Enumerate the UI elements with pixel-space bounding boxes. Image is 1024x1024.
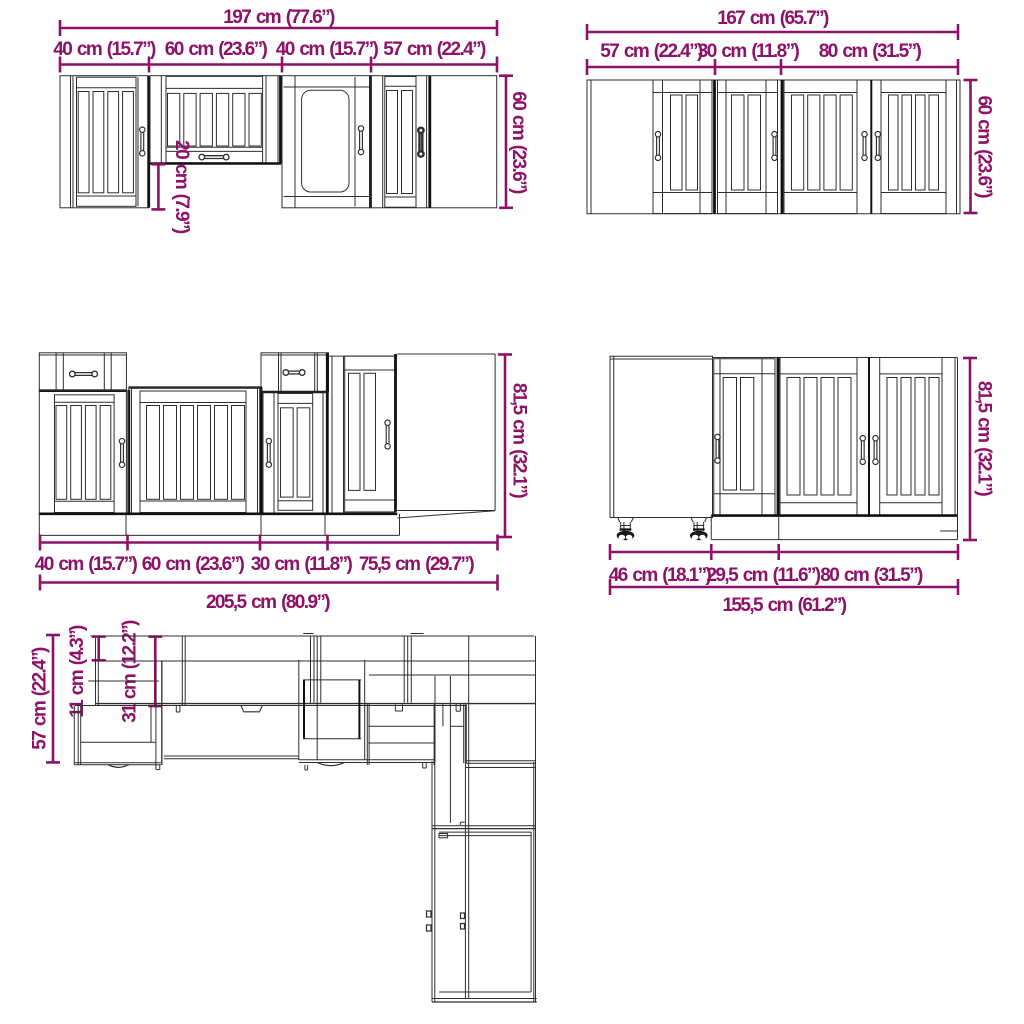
svg-text:57 cm (22.4”): 57 cm (22.4”) [600, 41, 703, 62]
svg-text:80 cm (31.5”): 80 cm (31.5”) [819, 41, 922, 62]
svg-text:57 cm (22.4”): 57 cm (22.4”) [30, 647, 51, 750]
svg-text:205,5 cm (80.9”): 205,5 cm (80.9”) [206, 592, 330, 613]
svg-text:30 cm (11.8”): 30 cm (11.8”) [698, 41, 800, 62]
svg-text:60 cm (23.6”): 60 cm (23.6”) [165, 39, 268, 60]
svg-text:80 cm (31.5”): 80 cm (31.5”) [820, 565, 923, 586]
svg-text:60 cm (23.6”): 60 cm (23.6”) [974, 96, 995, 199]
svg-text:167 cm (65.7”): 167 cm (65.7”) [717, 8, 829, 29]
svg-text:31 cm (12.2”): 31 cm (12.2”) [120, 620, 141, 723]
svg-text:60 cm (23.6”): 60 cm (23.6”) [508, 91, 529, 194]
svg-text:46 cm (18.1”): 46 cm (18.1”) [609, 565, 712, 586]
svg-text:29,5 cm (11.6”): 29,5 cm (11.6”) [706, 565, 820, 586]
svg-text:40 cm (15.7”): 40 cm (15.7”) [276, 39, 379, 60]
svg-text:81,5 cm (32.1”): 81,5 cm (32.1”) [509, 383, 530, 498]
svg-text:57 cm (22.4”): 57 cm (22.4”) [383, 39, 486, 60]
svg-text:155,5 cm (61.2”): 155,5 cm (61.2”) [722, 595, 846, 616]
svg-text:30 cm (11.8”): 30 cm (11.8”) [251, 554, 353, 575]
svg-text:197 cm (77.6”): 197 cm (77.6”) [223, 7, 335, 28]
svg-text:40 cm (15.7”): 40 cm (15.7”) [35, 554, 138, 575]
svg-text:75,5 cm (29.7”): 75,5 cm (29.7”) [359, 554, 474, 575]
svg-text:40 cm (15.7”): 40 cm (15.7”) [53, 39, 156, 60]
svg-text:11 cm (4.3”): 11 cm (4.3”) [67, 625, 88, 718]
svg-text:60 cm (23.6”): 60 cm (23.6”) [142, 554, 245, 575]
svg-text:81,5 cm (32.1”): 81,5 cm (32.1”) [974, 381, 995, 496]
svg-text:20 cm (7.9”): 20 cm (7.9”) [171, 140, 192, 234]
